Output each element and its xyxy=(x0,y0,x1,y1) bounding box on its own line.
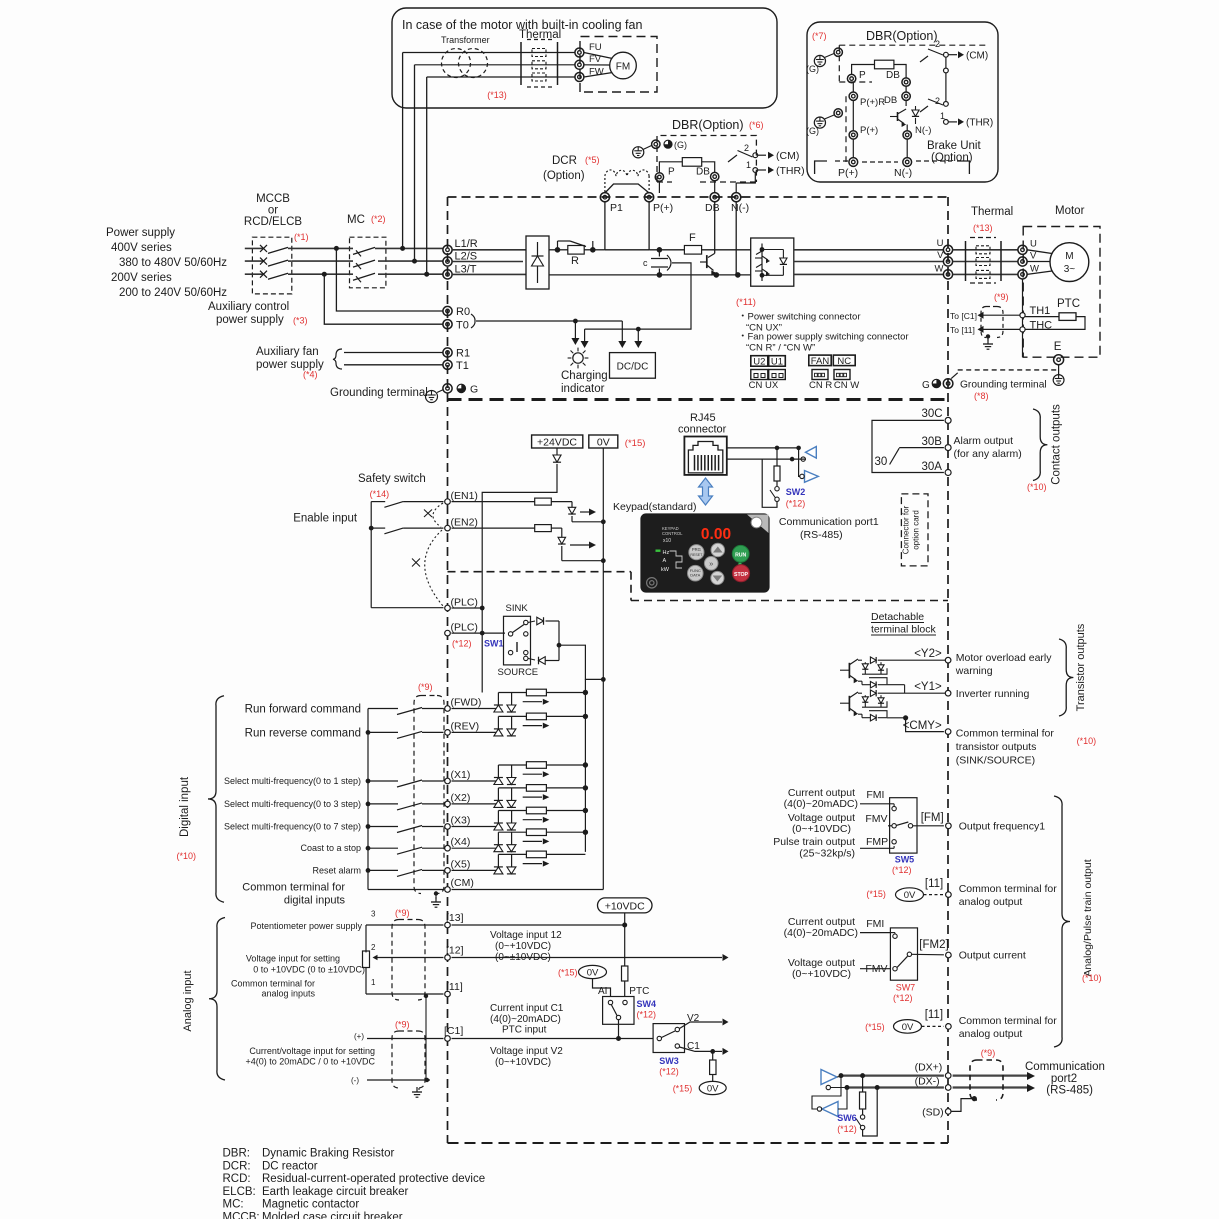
svg-text:(*15): (*15) xyxy=(866,889,886,899)
svg-text:P(+): P(+) xyxy=(653,202,673,214)
svg-text:port2: port2 xyxy=(1051,1073,1077,1085)
svg-text:Contact outputs: Contact outputs xyxy=(1051,404,1063,485)
svg-text:Common terminal for: Common terminal for xyxy=(956,728,1055,740)
svg-text:F: F xyxy=(689,232,696,244)
svg-text:0V: 0V xyxy=(904,890,916,901)
svg-text:30C: 30C xyxy=(922,408,943,420)
svg-text:Current input C1: Current input C1 xyxy=(490,1003,564,1014)
svg-text:analog output: analog output xyxy=(959,896,1023,908)
svg-text:G: G xyxy=(922,380,930,391)
svg-text:30B: 30B xyxy=(922,436,943,448)
svg-text:PTC: PTC xyxy=(1057,298,1080,310)
svg-text:(THR): (THR) xyxy=(966,118,993,129)
svg-text:U: U xyxy=(1030,239,1037,250)
svg-text:Analog/Pulse train output: Analog/Pulse train output xyxy=(1082,859,1094,976)
svg-text:2: 2 xyxy=(371,943,376,952)
svg-text:(*2): (*2) xyxy=(371,214,386,224)
svg-text:Transformer: Transformer xyxy=(441,35,490,45)
svg-text:Brake Unit: Brake Unit xyxy=(927,140,981,152)
svg-text:・Fan power supply switching co: ・Fan power supply switching connector xyxy=(738,332,909,343)
svg-text:0V: 0V xyxy=(587,968,599,979)
svg-text:(G): (G) xyxy=(674,140,687,150)
svg-text:R: R xyxy=(571,255,579,267)
svg-text:DCR:: DCR: xyxy=(223,1160,251,1172)
svg-text:Common terminal for: Common terminal for xyxy=(959,1015,1058,1027)
svg-text:(DX+): (DX+) xyxy=(915,1062,943,1074)
svg-text:[11]: [11] xyxy=(446,981,463,993)
svg-text:380 to 480V 50/60Hz: 380 to 480V 50/60Hz xyxy=(119,257,227,269)
svg-text:(*12): (*12) xyxy=(892,865,912,875)
svg-text:Coast to a stop: Coast to a stop xyxy=(300,843,361,853)
svg-text:Run reverse command: Run reverse command xyxy=(245,727,361,739)
svg-text:(FWD): (FWD) xyxy=(451,697,482,709)
svg-text:+24VDC: +24VDC xyxy=(537,437,577,449)
svg-text:FMI: FMI xyxy=(866,789,884,801)
svg-text:(*14): (*14) xyxy=(370,489,390,499)
svg-text:(G): (G) xyxy=(806,64,819,74)
svg-text:PTC input: PTC input xyxy=(502,1025,547,1036)
svg-text:(X3): (X3) xyxy=(451,815,471,827)
svg-text:P: P xyxy=(859,70,866,81)
svg-text:To [C1]: To [C1] xyxy=(950,311,977,321)
svg-text:P1: P1 xyxy=(610,202,623,214)
svg-text:Select multi-frequency(0 to 7: Select multi-frequency(0 to 7 step) xyxy=(224,822,361,832)
svg-text:A: A xyxy=(663,558,667,564)
svg-text:(0~+10VDC): (0~+10VDC) xyxy=(792,823,851,835)
svg-text:(*10): (*10) xyxy=(177,851,197,861)
svg-text:Pulse train output: Pulse train output xyxy=(773,836,855,848)
svg-text:(*15): (*15) xyxy=(625,438,646,449)
svg-text:Magnetic contactor: Magnetic contactor xyxy=(262,1199,359,1211)
svg-text:V: V xyxy=(937,250,944,261)
svg-text:[C1]: [C1] xyxy=(444,1025,463,1037)
svg-text:(*9): (*9) xyxy=(395,908,410,918)
svg-text:Analog input: Analog input xyxy=(182,970,194,1031)
svg-text:MC: MC xyxy=(347,214,365,226)
svg-text:x10: x10 xyxy=(663,538,671,544)
svg-text:2: 2 xyxy=(935,96,940,106)
svg-text:RCD/ELCB: RCD/ELCB xyxy=(244,216,302,228)
svg-text:Inverter running: Inverter running xyxy=(956,688,1030,700)
svg-text:N(-): N(-) xyxy=(915,125,931,136)
svg-text:SW4: SW4 xyxy=(637,999,657,1009)
svg-text:N(-): N(-) xyxy=(731,202,749,214)
svg-text:Hz: Hz xyxy=(663,550,670,556)
svg-text:transistor outputs: transistor outputs xyxy=(956,741,1037,753)
svg-text:RUN: RUN xyxy=(735,553,746,559)
svg-text:・Power switching connector: ・Power switching connector xyxy=(738,312,861,323)
svg-text:Molded case circuit breaker: Molded case circuit breaker xyxy=(262,1212,403,1219)
svg-text:(4(0)~20mADC): (4(0)~20mADC) xyxy=(490,1014,561,1025)
svg-text:(0~±10VDC): (0~±10VDC) xyxy=(495,952,551,963)
svg-text:(*12): (*12) xyxy=(659,1067,679,1077)
svg-text:(*10): (*10) xyxy=(1027,482,1047,492)
svg-text:200 to 240V 50/60Hz: 200 to 240V 50/60Hz xyxy=(119,287,227,299)
svg-text:V: V xyxy=(1030,251,1037,262)
svg-text:(*3): (*3) xyxy=(293,316,308,326)
svg-text:(RS-485): (RS-485) xyxy=(1046,1085,1093,1097)
svg-text:(*9): (*9) xyxy=(418,682,433,692)
svg-text:[12]: [12] xyxy=(446,945,464,957)
svg-text:Voltage input 12: Voltage input 12 xyxy=(490,930,562,941)
svg-text:<Y1>: <Y1> xyxy=(914,681,942,693)
svg-text:Earth leakage circuit breaker: Earth leakage circuit breaker xyxy=(262,1186,409,1198)
svg-text:(THR): (THR) xyxy=(776,165,805,177)
svg-text:Charging: Charging xyxy=(561,370,608,382)
svg-text:Alarm output: Alarm output xyxy=(954,435,1014,447)
svg-text:kW: kW xyxy=(661,567,670,573)
svg-text:FMI: FMI xyxy=(866,918,884,930)
svg-text:Connector for: Connector for xyxy=(902,505,911,554)
svg-text:SW3: SW3 xyxy=(659,1056,679,1066)
svg-text:Keypad(standard): Keypad(standard) xyxy=(613,501,696,513)
svg-text:(X5): (X5) xyxy=(451,858,471,870)
svg-text:30A: 30A xyxy=(922,461,943,473)
svg-text:Output current: Output current xyxy=(959,950,1026,962)
svg-text:DBR(Option): DBR(Option) xyxy=(866,29,938,43)
svg-text:Power supply: Power supply xyxy=(106,227,175,239)
svg-text:c: c xyxy=(643,258,648,268)
svg-text:option card: option card xyxy=(912,510,921,550)
svg-text:(CM): (CM) xyxy=(451,877,474,889)
svg-text:0V: 0V xyxy=(597,437,610,449)
svg-text:PRG: PRG xyxy=(692,547,701,552)
svg-text:(CM): (CM) xyxy=(776,150,799,162)
svg-text:(0~+10VDC): (0~+10VDC) xyxy=(792,968,851,980)
svg-text:1: 1 xyxy=(371,978,376,987)
svg-text:Grounding terminal: Grounding terminal xyxy=(960,380,1047,391)
svg-text:(SD): (SD) xyxy=(922,1107,944,1119)
svg-text:(*12): (*12) xyxy=(786,499,806,509)
svg-text:(*9): (*9) xyxy=(994,292,1009,302)
svg-text:Auxiliary fan: Auxiliary fan xyxy=(256,346,319,358)
svg-text:(SINK/SOURCE): (SINK/SOURCE) xyxy=(956,755,1035,767)
svg-text:DCR: DCR xyxy=(552,155,577,167)
svg-text:analog inputs: analog inputs xyxy=(261,989,315,999)
svg-text:“CN R” / “CN W”: “CN R” / “CN W” xyxy=(746,343,815,354)
svg-text:L1/R: L1/R xyxy=(455,238,478,250)
svg-text:(X4): (X4) xyxy=(451,836,471,848)
svg-text:AI: AI xyxy=(598,986,607,997)
svg-text:2: 2 xyxy=(935,39,940,49)
svg-text:(PLC): (PLC) xyxy=(451,622,478,634)
svg-text:(CM): (CM) xyxy=(966,51,988,62)
svg-text:(*7): (*7) xyxy=(812,31,827,41)
svg-text:Communication port1: Communication port1 xyxy=(779,516,879,528)
svg-text:U2: U2 xyxy=(753,356,765,367)
svg-text:(*10): (*10) xyxy=(1077,736,1097,746)
svg-text:(25~32kp/s): (25~32kp/s) xyxy=(799,848,855,860)
svg-text:Select multi-frequency(0 to 1: Select multi-frequency(0 to 1 step) xyxy=(224,776,361,786)
svg-text:SW7: SW7 xyxy=(896,983,916,993)
svg-text:P(+): P(+) xyxy=(838,167,858,179)
svg-text:[FM]: [FM] xyxy=(921,812,944,824)
svg-text:(*6): (*6) xyxy=(749,120,764,130)
svg-text:CN UX: CN UX xyxy=(749,380,779,391)
svg-text:U: U xyxy=(937,238,944,249)
svg-text:MCCB:: MCCB: xyxy=(223,1212,260,1219)
svg-text:+10VDC: +10VDC xyxy=(605,901,645,913)
svg-text:0V: 0V xyxy=(707,1084,719,1095)
svg-text:(for any alarm): (for any alarm) xyxy=(954,448,1022,460)
svg-text:(RS-485): (RS-485) xyxy=(800,529,843,541)
svg-text:terminal block: terminal block xyxy=(871,624,937,636)
svg-text:To [11]: To [11] xyxy=(950,325,975,335)
svg-text:(*15): (*15) xyxy=(673,1084,693,1094)
svg-text:M: M xyxy=(1065,251,1073,262)
svg-text:Communication: Communication xyxy=(1025,1061,1105,1073)
svg-text:(PLC): (PLC) xyxy=(451,597,478,609)
svg-text:SW5: SW5 xyxy=(895,855,915,865)
svg-text:U1: U1 xyxy=(771,356,783,367)
svg-text:Transistor outputs: Transistor outputs xyxy=(1075,623,1087,711)
svg-text:indicator: indicator xyxy=(561,383,605,395)
svg-text:(*4): (*4) xyxy=(303,370,318,380)
svg-text:Safety switch: Safety switch xyxy=(358,473,426,485)
svg-text:Reset alarm: Reset alarm xyxy=(312,865,361,875)
svg-text:[13]: [13] xyxy=(446,912,464,924)
svg-text:»: » xyxy=(709,559,713,568)
svg-text:RCD:: RCD: xyxy=(223,1173,251,1185)
svg-text:Residual-current-operated prot: Residual-current-operated protective dev… xyxy=(262,1173,485,1185)
svg-text:CN R: CN R xyxy=(809,380,832,391)
svg-text:PTC: PTC xyxy=(629,986,649,997)
svg-text:W: W xyxy=(935,264,944,275)
svg-text:30: 30 xyxy=(875,456,888,468)
svg-text:FM: FM xyxy=(616,62,630,73)
svg-text:Run forward command: Run forward command xyxy=(245,704,361,716)
svg-text:(4(0)~20mADC): (4(0)~20mADC) xyxy=(784,798,858,810)
svg-text:R0: R0 xyxy=(456,306,470,318)
svg-text:MC:: MC: xyxy=(223,1199,244,1211)
svg-text:(*10): (*10) xyxy=(1082,973,1102,983)
svg-text:DB: DB xyxy=(884,95,897,106)
svg-text:P: P xyxy=(668,167,675,178)
svg-text:(0~+10VDC): (0~+10VDC) xyxy=(495,941,551,952)
svg-text:0 to +10VDC (0 to ±10VDC): 0 to +10VDC (0 to ±10VDC) xyxy=(253,965,365,975)
svg-text:(*9): (*9) xyxy=(395,1020,410,1030)
svg-text:FMP: FMP xyxy=(866,836,888,848)
svg-text:2: 2 xyxy=(744,143,749,153)
svg-text:warning: warning xyxy=(955,665,993,677)
svg-text:Common terminal for: Common terminal for xyxy=(231,979,315,989)
svg-text:RESET: RESET xyxy=(690,553,703,557)
svg-text:power supply: power supply xyxy=(216,314,284,326)
svg-text:Thermal: Thermal xyxy=(519,29,561,41)
svg-text:SOURCE: SOURCE xyxy=(498,667,539,678)
svg-text:N(-): N(-) xyxy=(894,167,912,179)
svg-text:(REV): (REV) xyxy=(451,720,480,732)
svg-text:(*15): (*15) xyxy=(558,968,578,978)
svg-text:P(+)R: P(+)R xyxy=(860,97,885,108)
svg-text:MCCB: MCCB xyxy=(256,193,290,205)
svg-text:TH1: TH1 xyxy=(1030,305,1051,317)
svg-text:[11]: [11] xyxy=(925,878,943,890)
svg-text:(EN2): (EN2) xyxy=(451,517,478,529)
svg-text:+4(0) to 20mADC / 0 to +10VDC: +4(0) to 20mADC / 0 to +10VDC xyxy=(245,1057,375,1067)
svg-text:Thermal: Thermal xyxy=(971,206,1013,218)
svg-text:<CMY>: <CMY> xyxy=(903,720,942,732)
svg-text:or: or xyxy=(268,205,278,217)
svg-text:CN W: CN W xyxy=(834,380,859,391)
svg-text:0V: 0V xyxy=(902,1022,914,1033)
svg-text:SW2: SW2 xyxy=(786,487,806,497)
svg-text:Digital input: Digital input xyxy=(179,776,191,837)
svg-text:(*9): (*9) xyxy=(981,1048,996,1058)
svg-text:ELCB:: ELCB: xyxy=(223,1186,256,1198)
svg-text:SW6: SW6 xyxy=(837,1113,857,1123)
svg-text:DBR:: DBR: xyxy=(223,1148,250,1160)
svg-text:DATA: DATA xyxy=(690,573,700,578)
svg-text:Detachable: Detachable xyxy=(871,611,924,623)
svg-text:Common terminal for: Common terminal for xyxy=(242,882,345,894)
svg-text:(4(0)~20mADC): (4(0)~20mADC) xyxy=(784,927,858,939)
svg-text:DB: DB xyxy=(696,167,710,178)
svg-text:Output frequency1: Output frequency1 xyxy=(959,821,1046,833)
svg-text:(-): (-) xyxy=(351,1076,359,1085)
svg-text:200V series: 200V series xyxy=(111,272,172,284)
svg-text:(EN1): (EN1) xyxy=(451,490,478,502)
svg-text:3: 3 xyxy=(371,910,376,919)
svg-text:T1: T1 xyxy=(456,360,469,372)
svg-text:Motor: Motor xyxy=(1055,205,1085,217)
svg-text:[11]: [11] xyxy=(925,1009,943,1021)
svg-text:(+): (+) xyxy=(354,1032,364,1041)
svg-text:NC: NC xyxy=(837,356,851,367)
svg-text:G: G xyxy=(470,384,478,396)
svg-text:P(+): P(+) xyxy=(860,125,878,136)
svg-text:DB: DB xyxy=(886,70,900,81)
svg-text:CONTROL: CONTROL xyxy=(662,531,683,536)
svg-text:C1: C1 xyxy=(687,1041,700,1052)
svg-text:(*11): (*11) xyxy=(736,297,756,308)
svg-text:0.00: 0.00 xyxy=(701,526,731,543)
svg-text:FAN: FAN xyxy=(811,356,830,367)
svg-text:Motor overload early: Motor overload early xyxy=(956,652,1052,664)
svg-text:Auxiliary control: Auxiliary control xyxy=(208,301,289,313)
svg-text:T0: T0 xyxy=(456,320,469,332)
svg-text:1: 1 xyxy=(746,160,751,170)
svg-text:(*12): (*12) xyxy=(893,993,913,1003)
svg-text:(G): (G) xyxy=(806,126,819,136)
svg-text:Common terminal for: Common terminal for xyxy=(959,883,1058,895)
svg-text:(Option): (Option) xyxy=(931,152,973,164)
svg-text:Grounding terminal: Grounding terminal xyxy=(330,387,428,399)
svg-text:(*1): (*1) xyxy=(294,232,309,242)
svg-text:(*12): (*12) xyxy=(637,1010,657,1020)
svg-text:[FM2]: [FM2] xyxy=(919,939,948,951)
svg-text:<Y2>: <Y2> xyxy=(914,648,942,660)
svg-text:400V series: 400V series xyxy=(111,242,172,254)
svg-text:Voltage input for setting: Voltage input for setting xyxy=(246,954,340,964)
svg-text:Voltage input V2: Voltage input V2 xyxy=(490,1046,563,1057)
svg-text:DBR(Option): DBR(Option) xyxy=(672,118,744,132)
svg-text:STOP: STOP xyxy=(734,572,749,578)
svg-text:(*12): (*12) xyxy=(837,1124,857,1134)
svg-text:(*5): (*5) xyxy=(585,155,600,165)
svg-text:Enable input: Enable input xyxy=(293,513,358,525)
svg-text:(X1): (X1) xyxy=(451,769,471,781)
svg-text:(*13): (*13) xyxy=(973,223,993,233)
svg-text:Dynamic Braking Resistor: Dynamic Braking Resistor xyxy=(262,1148,394,1160)
svg-text:(Option): (Option) xyxy=(543,170,585,182)
svg-text:Potentiometer power supply: Potentiometer power supply xyxy=(250,921,362,931)
svg-text:FU: FU xyxy=(589,42,602,53)
svg-text:FMV: FMV xyxy=(865,813,887,825)
svg-text:DC reactor: DC reactor xyxy=(262,1160,318,1172)
svg-text:(*8): (*8) xyxy=(974,391,989,401)
svg-text:3~: 3~ xyxy=(1064,264,1076,275)
svg-text:Select multi-frequency(0 to 3: Select multi-frequency(0 to 3 step) xyxy=(224,799,361,809)
svg-text:E: E xyxy=(1054,341,1062,353)
svg-text:(X2): (X2) xyxy=(451,792,471,804)
svg-text:DB: DB xyxy=(705,202,720,214)
svg-text:connector: connector xyxy=(678,424,727,436)
svg-text:digital inputs: digital inputs xyxy=(284,895,346,907)
svg-text:RJ45: RJ45 xyxy=(690,412,716,424)
svg-text:(DX-): (DX-) xyxy=(915,1076,940,1088)
svg-text:R1: R1 xyxy=(456,348,470,360)
svg-text:SW1: SW1 xyxy=(484,639,504,649)
svg-text:Current/voltage input for sett: Current/voltage input for setting xyxy=(249,1046,375,1056)
svg-text:analog output: analog output xyxy=(959,1028,1023,1040)
svg-text:(*15): (*15) xyxy=(865,1022,885,1032)
svg-text:DC/DC: DC/DC xyxy=(617,362,649,373)
svg-text:(0~+10VDC): (0~+10VDC) xyxy=(495,1057,551,1068)
svg-text:(*13): (*13) xyxy=(487,90,507,100)
svg-text:SINK: SINK xyxy=(506,603,529,614)
svg-text:(*12): (*12) xyxy=(452,639,472,649)
